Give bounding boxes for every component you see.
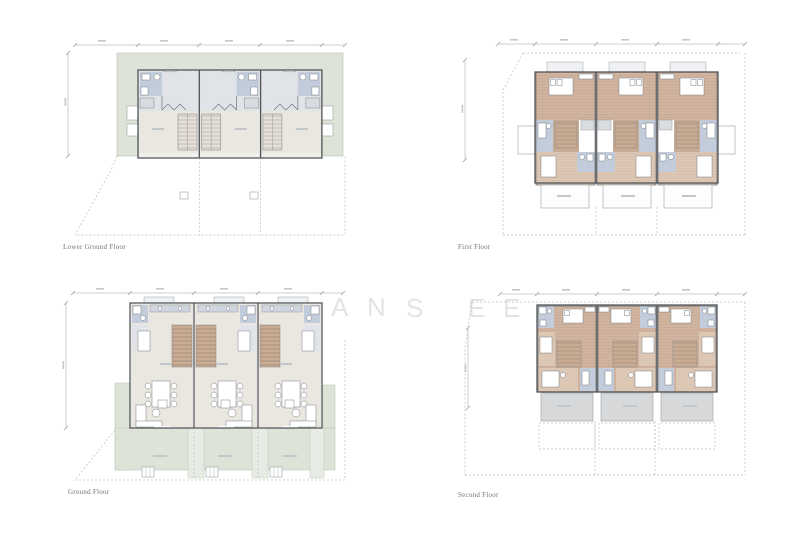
dimension-line-top [71,288,345,295]
side-balcony [518,126,535,154]
path [310,428,324,478]
side-balcony [718,126,735,154]
watermark-letter: N [367,292,386,323]
unit-2 [597,62,656,208]
path [188,428,204,478]
window-well [127,106,138,120]
unit-3 [259,297,321,428]
lower-ground-floor-drawing [60,36,352,251]
first-floor-plan [448,30,763,248]
garden-label [218,455,232,457]
dimension-line-left [462,58,467,162]
dimension-line-top [73,40,347,47]
dimension-line-top [496,39,747,46]
window-well [127,124,138,136]
garden-label [283,455,297,457]
second-floor-drawing [452,288,762,493]
dimension-line-left [465,326,470,410]
floor-plan-sheet: A N S E E [0,0,800,539]
ground-floor-plan [58,283,358,503]
dimension-line-left [63,301,68,430]
lower-ground-floor-plan [60,36,352,251]
unit-1 [139,70,198,157]
window-well [322,106,333,120]
unit-1 [538,306,596,449]
unit-3 [658,306,716,449]
plan-caption-second: Second Floor [458,491,499,499]
garden-label [153,455,167,457]
plan-caption-ground: Ground Floor [68,488,109,496]
second-floor-plan [452,288,762,493]
unit-3 [658,62,717,208]
unit-1 [536,62,595,208]
unit-2 [200,70,259,157]
unit-3 [262,70,321,157]
plan-caption-first: First Floor [458,243,491,251]
ground-floor-drawing [58,283,358,503]
first-floor-drawing [448,30,763,248]
unit-1 [131,297,193,428]
path [252,428,268,478]
unit-2 [598,306,656,449]
dimension-line-top [498,289,747,296]
watermark-letter: S [406,293,423,324]
unit-2 [195,297,257,428]
site-boundary [75,156,345,235]
dimension-line-left [65,51,70,158]
plan-caption-lower-ground: Lower Ground Floor [63,243,126,251]
window-well [322,124,333,136]
